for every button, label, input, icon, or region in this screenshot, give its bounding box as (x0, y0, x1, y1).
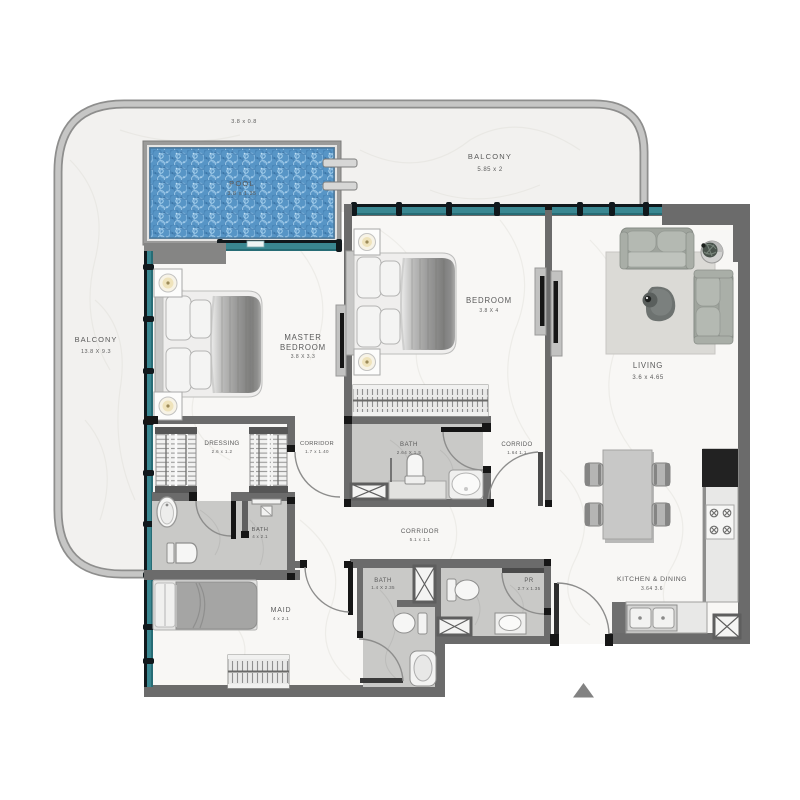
svg-text:PR: PR (524, 578, 534, 584)
svg-text:POOL: POOL (229, 179, 255, 188)
svg-text:BEDROOM: BEDROOM (466, 296, 512, 305)
svg-text:BATH: BATH (374, 578, 392, 584)
svg-text:BATH: BATH (400, 442, 418, 448)
svg-text:KITCHEN & DINING: KITCHEN & DINING (617, 576, 687, 583)
svg-text:CORRIDOR: CORRIDOR (401, 528, 439, 535)
svg-text:3.6 x 4.65: 3.6 x 4.65 (632, 375, 664, 381)
svg-text:5.1 x 1.1: 5.1 x 1.1 (410, 537, 431, 542)
svg-text:BEDROOM: BEDROOM (280, 343, 326, 352)
svg-text:CORRIDOR: CORRIDOR (300, 441, 334, 447)
svg-text:1.4 X 2.35: 1.4 X 2.35 (371, 585, 395, 590)
svg-text:13.8 X 9.3: 13.8 X 9.3 (81, 349, 111, 355)
svg-text:1.7 x 1.40: 1.7 x 1.40 (305, 449, 329, 454)
svg-text:3.8 X 4: 3.8 X 4 (479, 308, 498, 314)
svg-text:2.64 X 1.5: 2.64 X 1.5 (397, 450, 422, 455)
svg-text:2.7 x 1.35: 2.7 x 1.35 (518, 586, 541, 591)
svg-text:3.64 3.6: 3.64 3.6 (641, 586, 663, 592)
svg-text:3.8 X 3.3: 3.8 X 3.3 (291, 354, 316, 360)
svg-text:4 x 2.1: 4 x 2.1 (252, 534, 268, 539)
svg-text:MAID: MAID (271, 607, 292, 614)
svg-text:3.8 x 0.8: 3.8 x 0.8 (231, 119, 257, 125)
svg-text:DRESSING: DRESSING (204, 440, 239, 447)
svg-text:1.64 1.1: 1.64 1.1 (507, 450, 527, 455)
svg-text:CORRIDO: CORRIDO (501, 442, 532, 448)
svg-text:2.6 x 1.2: 2.6 x 1.2 (212, 449, 233, 454)
svg-text:BATH: BATH (252, 527, 269, 533)
svg-text:3.8 x 1.35: 3.8 x 1.35 (227, 191, 256, 197)
svg-text:BALCONY: BALCONY (468, 152, 512, 161)
svg-text:LIVING: LIVING (633, 361, 663, 370)
svg-text:BALCONY: BALCONY (75, 335, 118, 344)
svg-text:MASTER: MASTER (284, 333, 321, 342)
svg-text:4 x 2.1: 4 x 2.1 (273, 616, 289, 621)
svg-text:5.85 x 2: 5.85 x 2 (477, 167, 503, 173)
